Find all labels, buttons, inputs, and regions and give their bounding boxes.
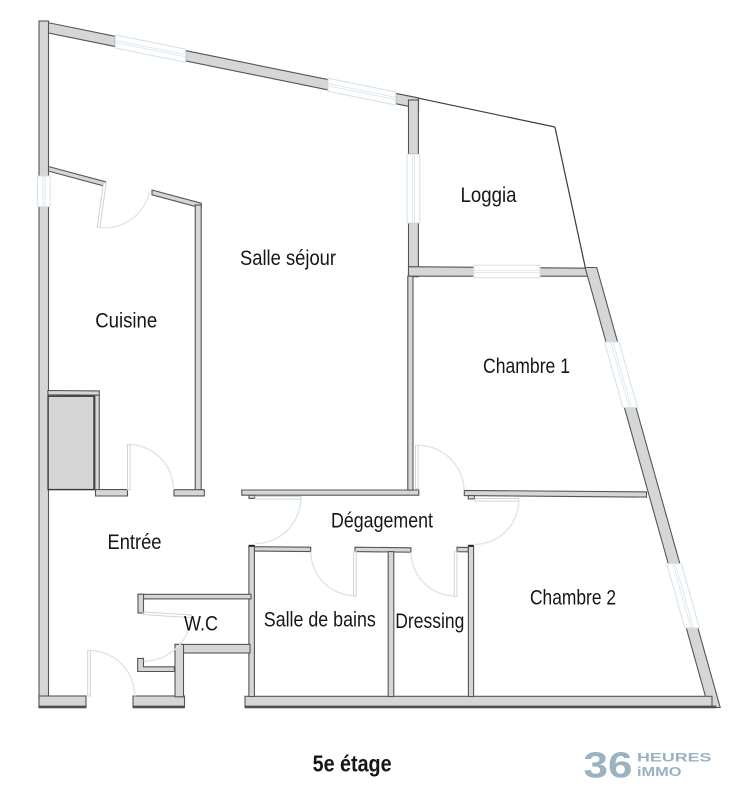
svg-text:W.C: W.C [184, 613, 218, 636]
svg-text:Loggia: Loggia [461, 184, 517, 207]
svg-text:Entrée: Entrée [108, 531, 162, 554]
svg-text:HEURES: HEURES [637, 753, 712, 765]
svg-text:36: 36 [584, 745, 633, 786]
svg-text:Chambre 1: Chambre 1 [483, 355, 570, 378]
svg-text:5e étage: 5e étage [313, 751, 392, 777]
svg-text:Chambre 2: Chambre 2 [530, 587, 616, 610]
svg-text:Salle de bains: Salle de bains [264, 609, 376, 632]
svg-text:iMMO: iMMO [637, 765, 682, 779]
svg-text:Dégagement: Dégagement [331, 510, 433, 533]
svg-text:Salle séjour: Salle séjour [240, 247, 336, 270]
svg-text:Cuisine: Cuisine [95, 310, 157, 333]
svg-text:Dressing: Dressing [395, 610, 464, 633]
